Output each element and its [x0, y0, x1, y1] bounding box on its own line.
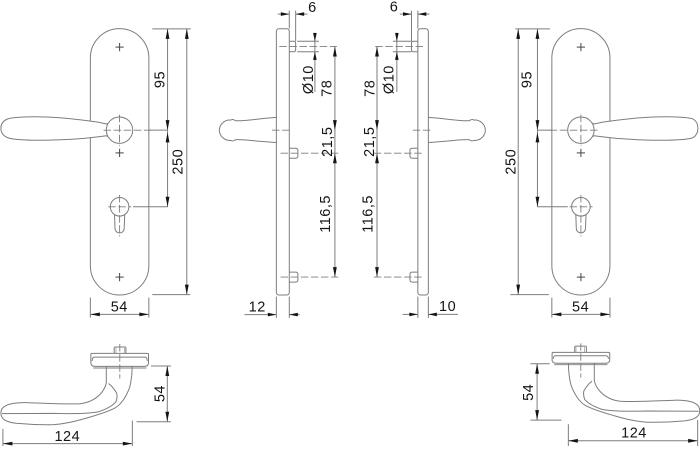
- svg-text:12: 12: [249, 299, 266, 315]
- svg-text:95: 95: [152, 71, 168, 88]
- svg-text:124: 124: [621, 426, 647, 442]
- svg-text:116,5: 116,5: [360, 195, 376, 233]
- svg-text:6: 6: [390, 0, 399, 15]
- svg-text:250: 250: [503, 149, 519, 175]
- svg-text:250: 250: [171, 149, 187, 175]
- svg-text:21,5: 21,5: [362, 127, 378, 157]
- svg-text:21,5: 21,5: [320, 127, 336, 157]
- svg-text:54: 54: [153, 385, 169, 402]
- svg-text:95: 95: [519, 71, 535, 88]
- svg-text:78: 78: [320, 80, 336, 97]
- svg-text:116,5: 116,5: [318, 195, 334, 233]
- svg-text:124: 124: [54, 429, 80, 445]
- svg-text:Ø10: Ø10: [301, 65, 317, 94]
- svg-text:6: 6: [308, 0, 317, 16]
- svg-text:78: 78: [362, 80, 378, 97]
- svg-text:54: 54: [521, 384, 537, 401]
- svg-text:54: 54: [572, 299, 589, 315]
- svg-text:54: 54: [111, 299, 128, 315]
- svg-text:Ø10: Ø10: [381, 65, 397, 94]
- svg-text:10: 10: [439, 299, 456, 315]
